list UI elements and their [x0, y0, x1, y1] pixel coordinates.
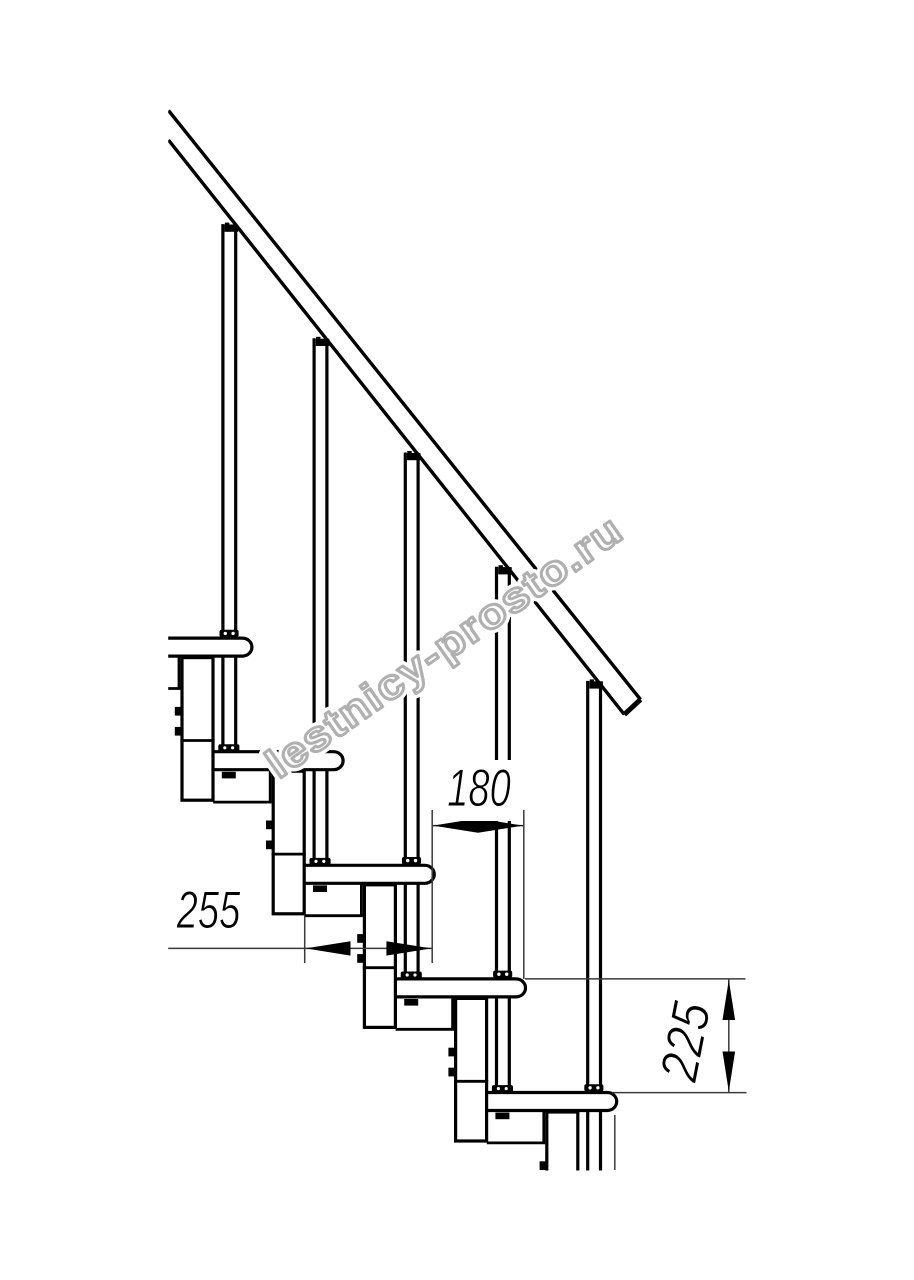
svg-text:255: 255: [176, 880, 241, 940]
svg-text:180: 180: [447, 758, 511, 818]
